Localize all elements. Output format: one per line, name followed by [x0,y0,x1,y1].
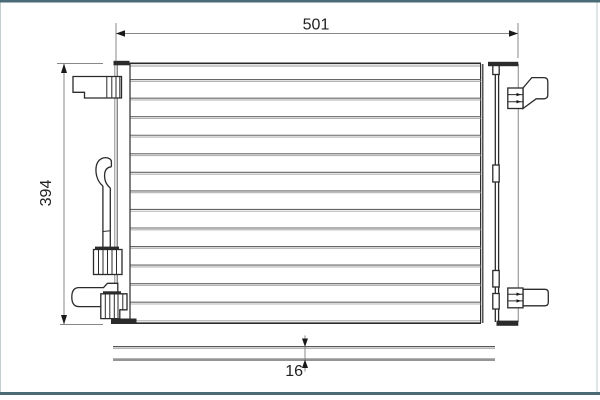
bottom-right-bracket-arm [523,289,548,306]
bottom-left-bracket [72,283,127,318]
frame-top-line [0,0,600,3]
drawing-page: 501 394 16 [0,0,600,400]
technical-drawing: 501 394 16 [0,0,600,400]
top-right-bracket-base [508,88,523,109]
top-right-bracket-arm [523,78,548,109]
left-hose [94,158,123,275]
dimension-width: 501 [116,17,518,62]
core-right-edge [481,64,483,323]
dimension-depth: 16 [285,336,308,381]
left-tank-bottom-cap [111,319,137,325]
drier-tab-4 [493,294,499,310]
top-left-bracket-body [73,77,122,99]
drier-bottom-cap [497,321,519,326]
dimension-depth-label: 16 [285,363,303,380]
drier-tab-2 [493,165,499,182]
drier-top-cap [488,62,518,66]
frame-left-line [0,3,1,393]
hose-pipe-walls [103,186,110,249]
hose-outer-curve [96,158,111,186]
core-tubes [131,80,481,304]
hose-inner-curve [105,167,112,188]
bottom-right-bracket [508,288,549,308]
frame-bottom-line [0,392,600,395]
side-view [113,347,495,360]
bottom-right-bracket-base [508,288,523,308]
dimension-height: 394 [38,64,103,325]
dimension-height-label: 394 [38,180,55,207]
hose-joint-line [103,231,110,232]
frame-right-line [597,3,598,393]
dimension-height-lines [57,64,103,325]
top-left-bracket [73,77,122,99]
drier-tab-3 [493,271,499,288]
dimension-width-label: 501 [303,17,330,34]
core-outline [127,63,483,323]
left-tank-top-cap [114,61,130,66]
top-right-bracket [508,78,548,109]
condenser-front-view [72,61,549,326]
